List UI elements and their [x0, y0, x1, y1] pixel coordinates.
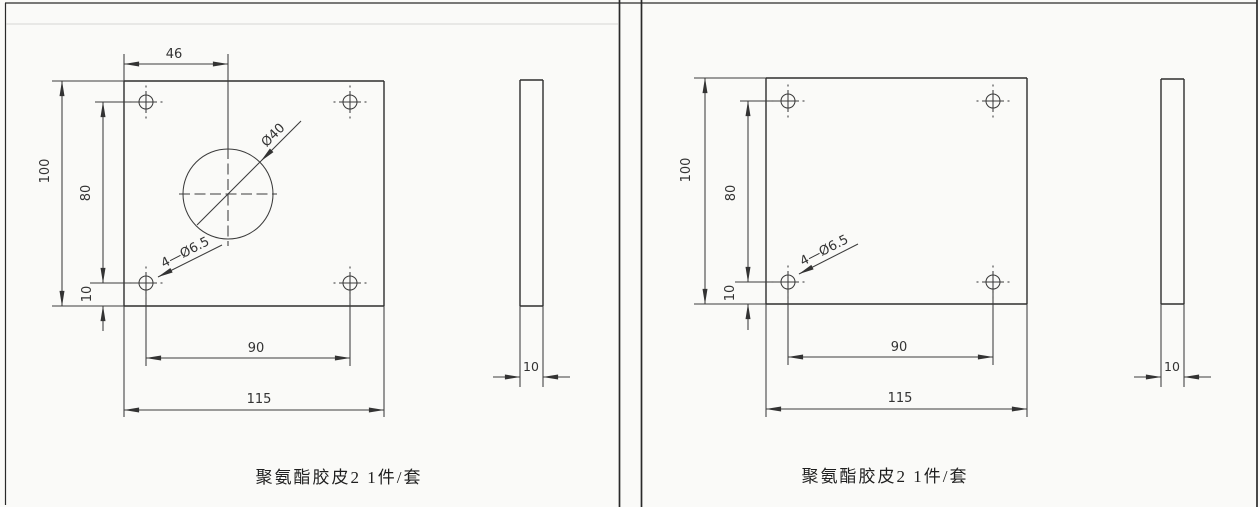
right-front-view: 100 80 10 90 115 4—Ø6.5 — [679, 78, 1027, 417]
dimension-label-80: 80 — [79, 185, 94, 202]
left-front-view: 46 100 80 10 90 115 Ø40 — [38, 47, 384, 417]
panel-right: 100 80 10 90 115 4—Ø6.5 — [679, 78, 1211, 486]
right-side-view: 10 — [1134, 79, 1211, 387]
center-hole-diameter-label: Ø40 — [259, 121, 289, 151]
dimension-label-90: 90 — [891, 340, 908, 355]
dimension-label-thickness: 10 — [1164, 359, 1180, 374]
diameter-line — [197, 161, 261, 225]
dimension-label-10-offset: 10 — [80, 286, 95, 303]
dimension-label-80: 80 — [724, 185, 739, 202]
corner-hole-top-right — [977, 85, 1010, 118]
corner-hole-top-right — [334, 86, 367, 119]
technical-drawing-canvas: 46 100 80 10 90 115 Ø40 — [0, 0, 1260, 507]
part-caption: 聚氨酯胶皮2 1件/套 — [256, 468, 423, 487]
corner-holes-label: 4—Ø6.5 — [798, 232, 851, 269]
dimension-label-thickness: 10 — [523, 359, 539, 374]
corner-holes-label: 4—Ø6.5 — [159, 234, 212, 271]
dimension-label-115: 115 — [888, 391, 913, 406]
dimension-label-100: 100 — [679, 158, 694, 183]
left-side-view: 10 — [493, 80, 570, 387]
dimension-label-115: 115 — [247, 392, 272, 407]
dimension-label-10-offset: 10 — [723, 285, 738, 302]
part-caption: 聚氨酯胶皮2 1件/套 — [802, 467, 969, 486]
drawing-sheet: 46 100 80 10 90 115 Ø40 — [0, 0, 1260, 507]
dimension-label-100: 100 — [38, 159, 53, 184]
panel-left: 46 100 80 10 90 115 Ø40 — [38, 47, 570, 487]
dimension-label-46: 46 — [166, 47, 183, 62]
dimension-label-90: 90 — [248, 341, 265, 356]
